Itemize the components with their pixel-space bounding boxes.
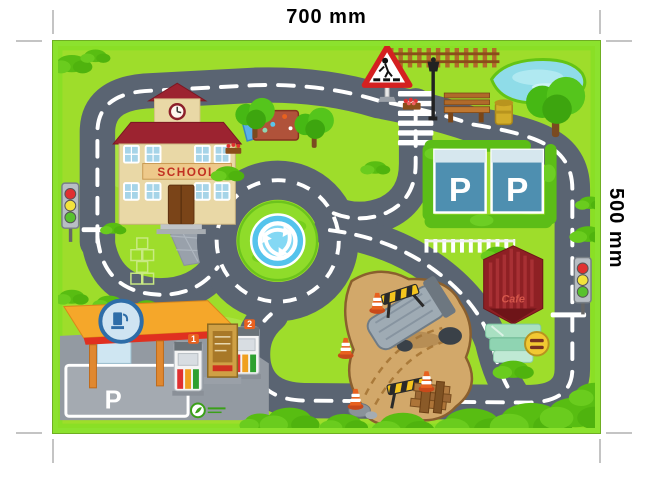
parking-letter: P [449,172,471,209]
kiosk-window [97,342,131,364]
fuel-pump-icon [100,301,141,342]
stop-line [551,312,586,317]
roundabout-sign-icon [251,214,304,267]
construction-site [338,272,472,425]
crop-mark [16,40,42,42]
flower-box [226,143,242,154]
school-sign: SCHOOL [157,166,216,179]
parking-spot-left: P [434,150,485,213]
cafe-sign: Cafe [501,294,524,306]
crop-mark [599,439,601,463]
parking-spot-right: P [492,150,543,213]
pump-number: 1 [191,334,196,344]
roundabout [238,202,317,280]
play-mat: SCHOOL [53,41,600,433]
trash-bin [494,99,513,124]
ground-parking-marking: P [105,386,122,414]
crop-mark [52,439,54,463]
product-image: 700 mm 500 mm [0,0,667,482]
price-sign [204,324,241,384]
parking-letter: P [506,172,528,209]
crop-mark [599,10,601,34]
crop-mark [606,432,632,434]
crop-mark [606,40,632,42]
height-dimension-label: 500 mm [604,188,627,269]
crop-mark [16,432,42,434]
crop-mark [52,10,54,34]
road-sign-yellow [525,332,549,356]
parking-hedge [545,144,557,224]
parking-pad: P [66,365,188,416]
fuel-pump-1: 1 [172,334,204,396]
pump-number: 2 [247,319,252,329]
width-dimension-label: 700 mm [53,6,600,29]
